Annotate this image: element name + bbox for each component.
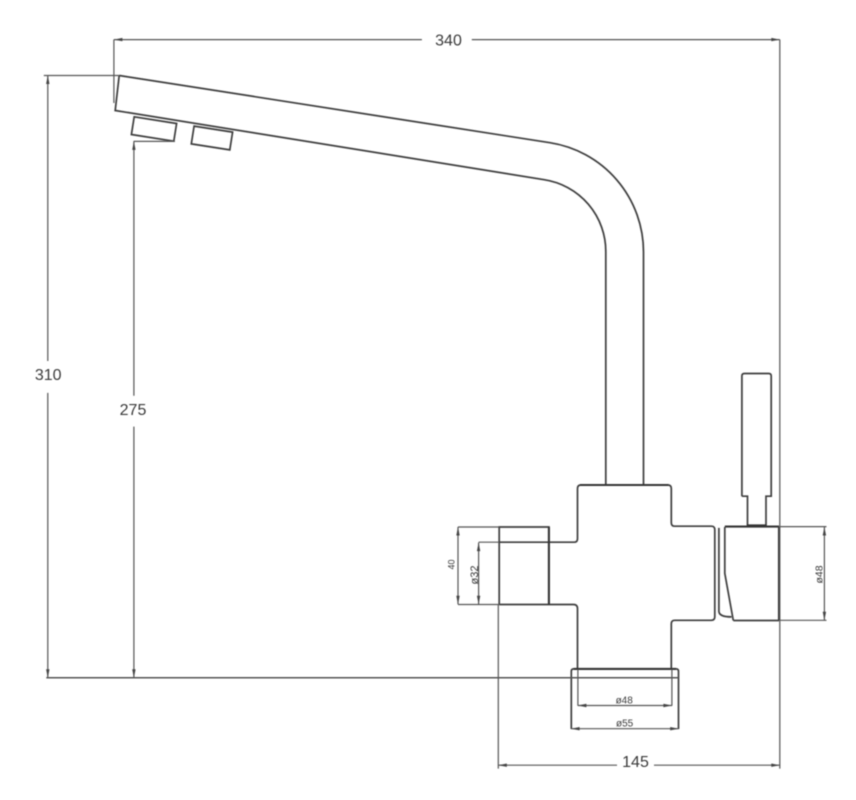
svg-text:ø32: ø32 xyxy=(469,566,481,585)
svg-text:40: 40 xyxy=(446,559,456,569)
svg-text:ø55: ø55 xyxy=(616,718,634,729)
svg-text:145: 145 xyxy=(622,754,649,771)
svg-text:310: 310 xyxy=(35,367,62,384)
svg-text:ø48: ø48 xyxy=(616,696,634,707)
svg-text:340: 340 xyxy=(435,32,462,49)
svg-text:ø48: ø48 xyxy=(813,565,825,583)
svg-text:275: 275 xyxy=(120,402,147,419)
